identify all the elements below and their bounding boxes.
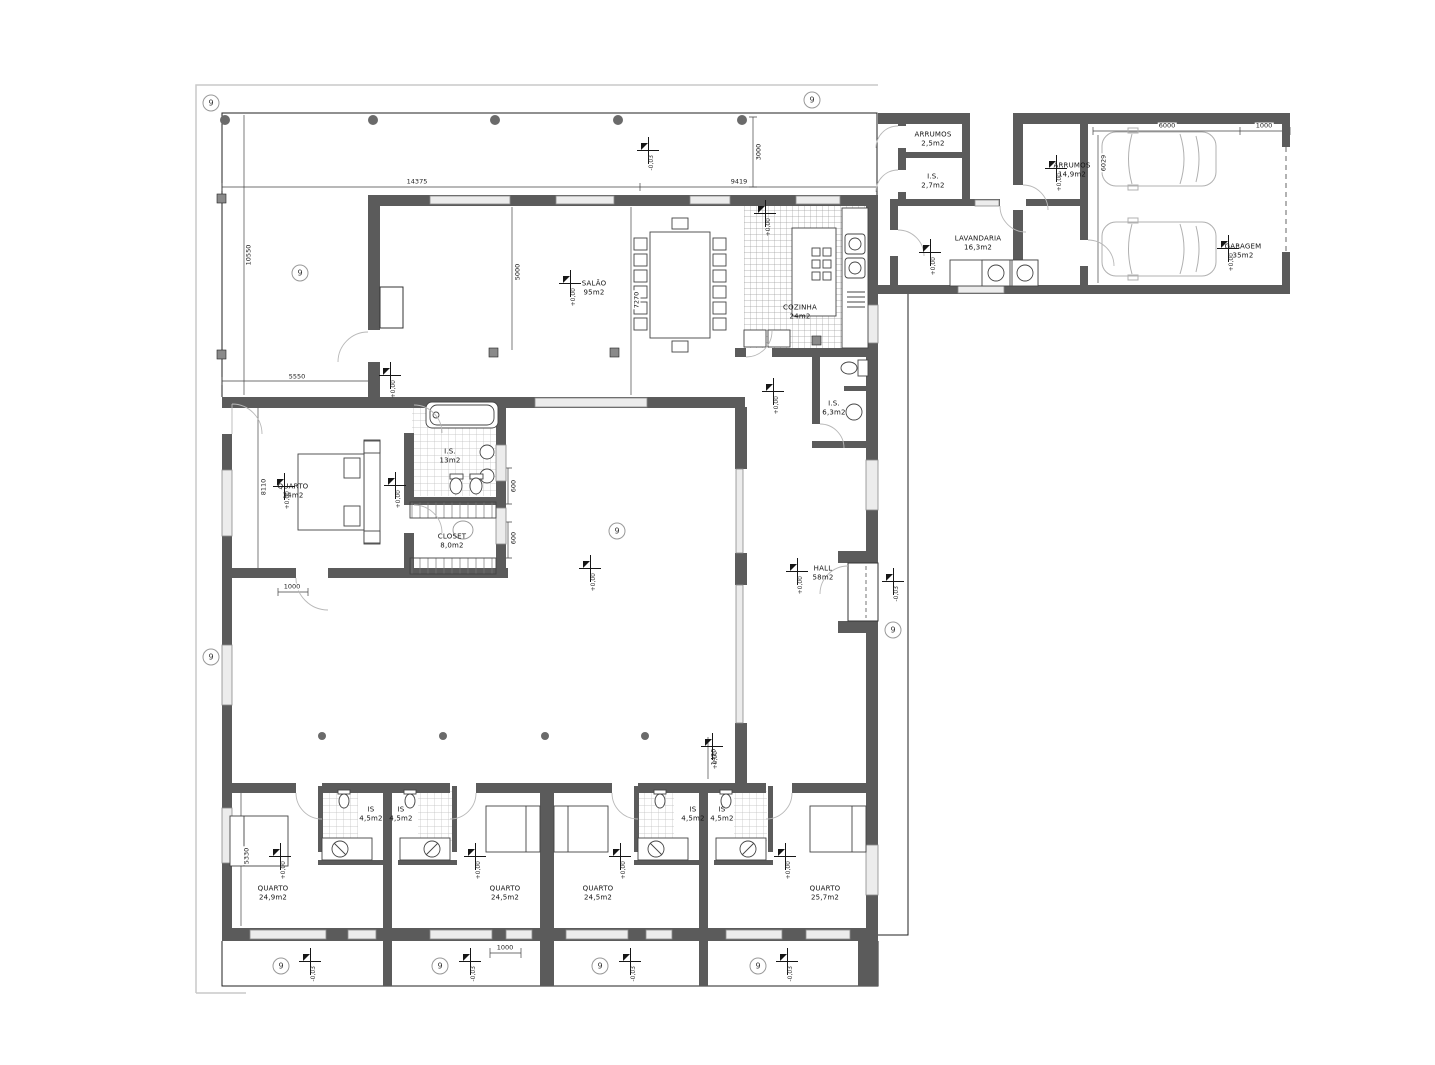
floor-plan-drawing (0, 0, 1435, 1065)
garage-cars (1102, 128, 1216, 280)
entry-door-niche (848, 563, 878, 621)
columns (217, 115, 821, 740)
closet-wardrobes (410, 502, 496, 574)
east-walkway-outline (878, 293, 908, 935)
master-bathtub (426, 402, 498, 428)
car-2 (1102, 218, 1216, 280)
car-1 (1102, 128, 1216, 190)
dining-table (634, 218, 726, 352)
floor-plan-sheet: SALÃO95m2COZINHA24m2LAVANDARIA16,3m2ARRU… (0, 0, 1435, 1065)
laundry-appliances (950, 260, 1038, 286)
master-bed (298, 440, 380, 544)
salao-niche (380, 287, 403, 328)
tiled-floors (322, 206, 866, 846)
kitchen-island (792, 228, 836, 316)
